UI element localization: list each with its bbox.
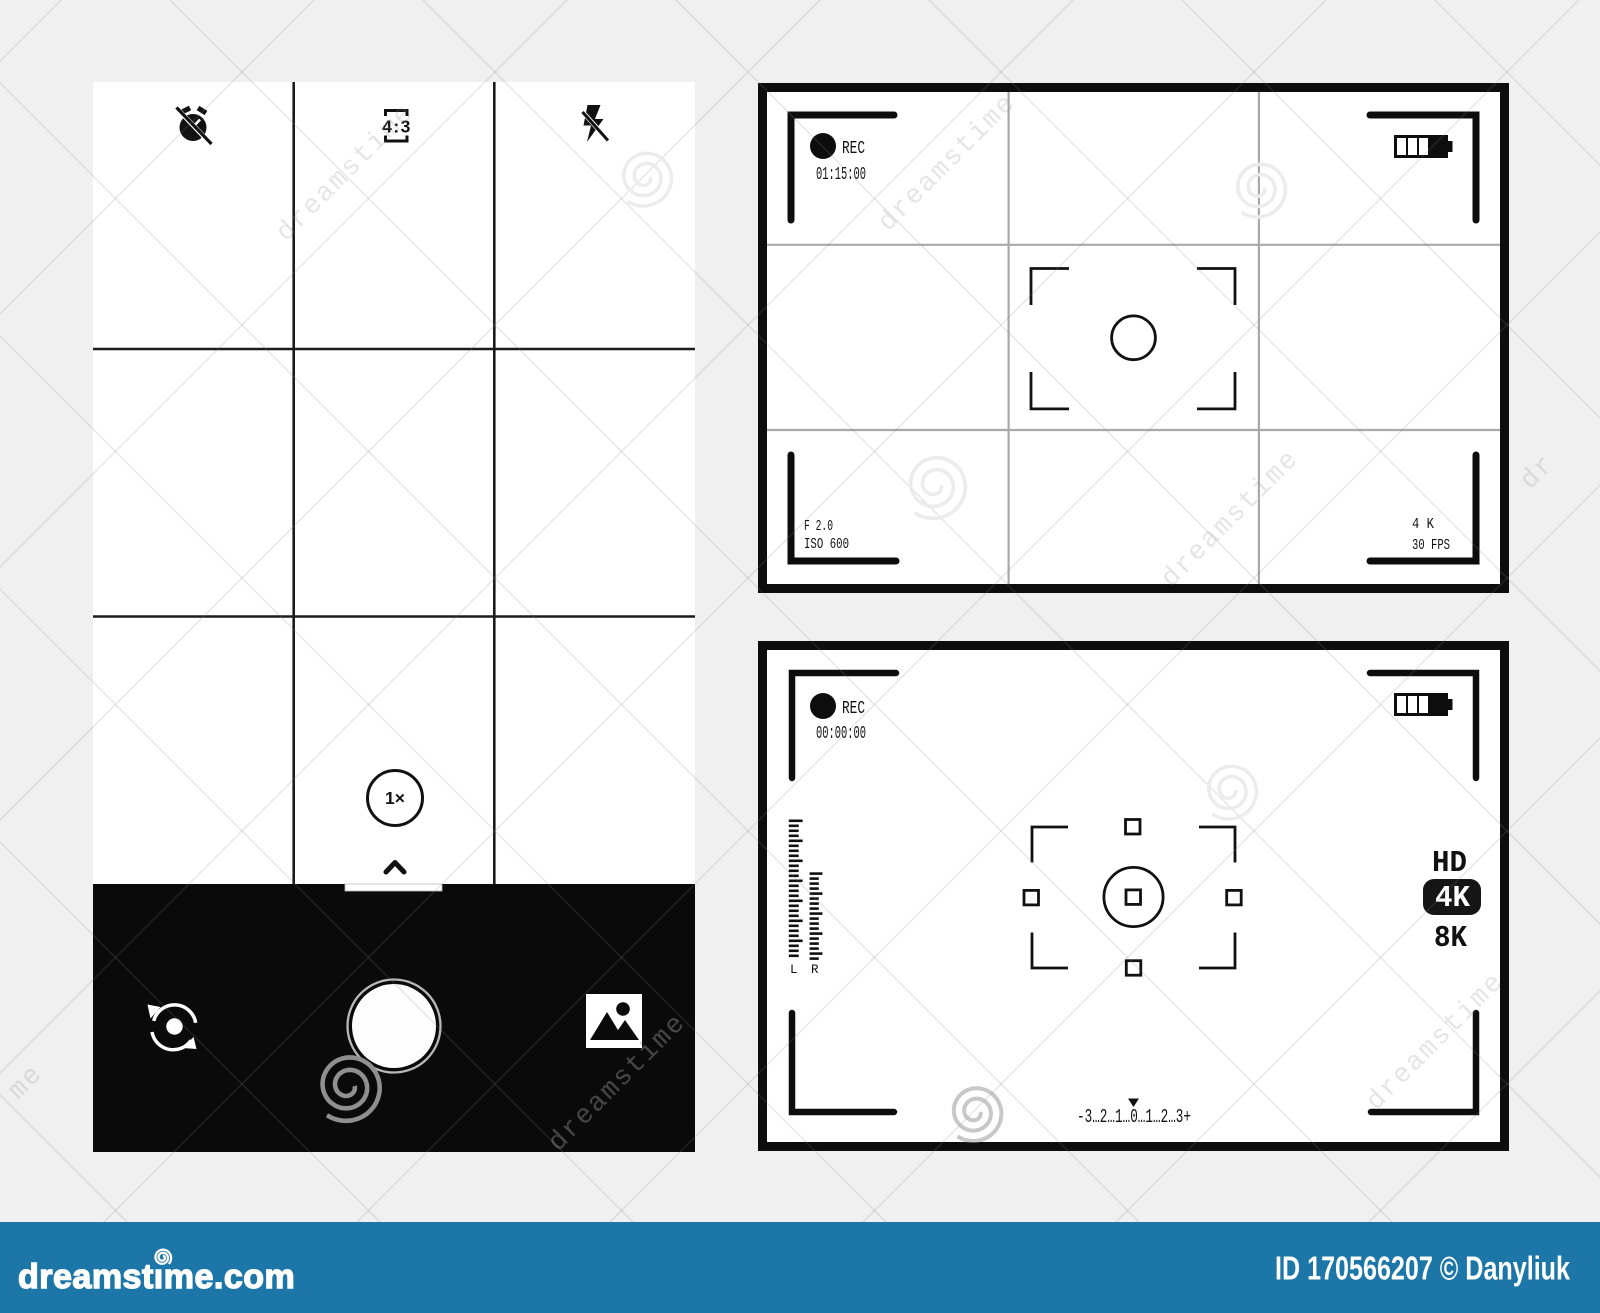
svg-text:R: R [811, 963, 819, 977]
svg-text:me: me [3, 1059, 50, 1106]
svg-text:ISO 600: ISO 600 [804, 536, 849, 553]
svg-text:REC: REC [842, 139, 865, 159]
svg-text:dr: dr [1515, 449, 1562, 496]
svg-text:00:00:00: 00:00:00 [816, 724, 866, 744]
svg-text:-3…2…1…0…1…2…3+: -3…2…1…0…1…2…3+ [1077, 1106, 1191, 1128]
svg-text:30 FPS: 30 FPS [1412, 537, 1450, 554]
svg-text:F 2.0: F 2.0 [804, 518, 833, 535]
svg-text:ID 170566207 © Danyliuk: ID 170566207 © Danyliuk [1275, 1250, 1570, 1287]
svg-text:8K: 8K [1434, 921, 1467, 956]
svg-text:4K: 4K [1435, 881, 1470, 916]
svg-text:HD: HD [1432, 846, 1467, 881]
svg-text:REC: REC [842, 699, 865, 719]
svg-text:L: L [790, 963, 798, 977]
svg-text:dreamstıme.com: dreamstıme.com [18, 1258, 295, 1296]
svg-text:1×: 1× [385, 788, 405, 808]
svg-text:4 K: 4 K [1412, 516, 1434, 533]
svg-text:4:3: 4:3 [382, 117, 410, 137]
svg-text:01:15:00: 01:15:00 [816, 165, 866, 185]
